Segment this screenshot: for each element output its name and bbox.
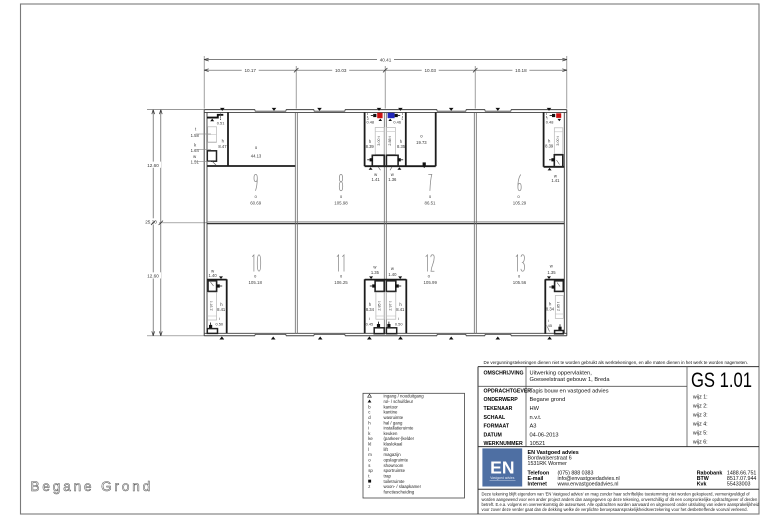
svg-text:wasruimte: wasruimte [384, 415, 404, 420]
svg-text:8.39: 8.39 [545, 144, 554, 149]
svg-text:n.v.t.: n.v.t. [530, 415, 542, 421]
svg-text:1531RK Wormer: 1531RK Wormer [528, 461, 568, 467]
svg-text:105.29: 105.29 [513, 200, 527, 205]
svg-text:10.17: 10.17 [244, 68, 256, 73]
svg-text:105.98: 105.98 [334, 200, 348, 205]
svg-text:1.41: 1.41 [551, 178, 560, 183]
svg-text:o: o [340, 194, 343, 199]
svg-text:o: o [517, 194, 520, 199]
svg-text:o: o [255, 194, 258, 199]
svg-text:A3: A3 [530, 424, 537, 430]
svg-text:Tagis bouw en vastgoed advies: Tagis bouw en vastgoed advies [530, 388, 609, 394]
svg-text:2.88 t: 2.88 t [388, 136, 392, 145]
svg-text:kantoor: kantoor [384, 404, 399, 409]
svg-text:o: o [254, 274, 257, 279]
svg-text:wijz 5:: wijz 5: [693, 431, 708, 437]
svg-text:magazijn: magazijn [384, 452, 402, 457]
svg-text:w: w [193, 154, 197, 159]
svg-text:25.20: 25.20 [145, 219, 157, 224]
svg-text:10.18: 10.18 [515, 68, 527, 73]
svg-text:8.41: 8.41 [396, 307, 405, 312]
svg-text:wijz 6:: wijz 6: [693, 440, 708, 446]
svg-text:OPDRACHTGEVER: OPDRACHTGEVER [484, 388, 532, 394]
svg-text:Vastgoed advies: Vastgoed advies [490, 476, 514, 480]
svg-text:0.46: 0.46 [393, 120, 401, 125]
svg-text:1.40: 1.40 [388, 272, 397, 277]
svg-text:showroom: showroom [384, 463, 404, 468]
svg-text:Kvk: Kvk [697, 482, 707, 488]
svg-text:HW: HW [530, 406, 540, 412]
svg-text:ke: ke [368, 436, 373, 441]
svg-text:FORMAAT: FORMAAT [484, 424, 510, 430]
svg-text:z: z [368, 484, 370, 489]
svg-text:Goeseelstraat gebouw 1, Breda: Goeseelstraat gebouw 1, Breda [530, 377, 611, 383]
svg-text:86.51: 86.51 [425, 200, 437, 205]
svg-text:i: i [368, 426, 369, 431]
svg-text:1.64: 1.64 [191, 148, 200, 153]
svg-text:3.00 t: 3.00 t [377, 136, 381, 145]
svg-text:0.45: 0.45 [544, 323, 552, 328]
svg-text:GS 1.01: GS 1.01 [691, 368, 752, 392]
svg-text:w: w [373, 265, 377, 270]
svg-text:t: t [195, 127, 197, 132]
svg-text:Begane Grond: Begane Grond [31, 479, 154, 494]
svg-text:i: i [398, 316, 399, 321]
svg-text:OMSCHRIJVING: OMSCHRIJVING [484, 371, 524, 377]
svg-text:sp: sp [368, 468, 373, 473]
svg-text:04-06-2013: 04-06-2013 [530, 432, 559, 438]
svg-text:105.99: 105.99 [423, 280, 437, 285]
svg-text:TEKENAAR: TEKENAAR [484, 406, 513, 412]
svg-text:8.47: 8.47 [218, 144, 227, 149]
svg-text:Begane grond: Begane grond [530, 397, 566, 403]
svg-text:10.03: 10.03 [424, 68, 436, 73]
svg-text:o: o [429, 194, 432, 199]
svg-text:o: o [255, 145, 258, 150]
svg-text:wijz 3:: wijz 3: [693, 413, 708, 419]
svg-text:2.97 t: 2.97 t [209, 301, 213, 310]
svg-text:i: i [402, 116, 403, 121]
svg-text:2.85 t: 2.85 t [557, 302, 561, 311]
svg-text:i: i [219, 316, 220, 321]
svg-text:0.50: 0.50 [216, 322, 224, 327]
svg-text:De vergunningstekeningen diene: De vergunningstekeningen dienen niet te … [484, 360, 748, 365]
svg-text:wijz 4:: wijz 4: [693, 422, 708, 428]
svg-text:toiletruimte: toiletruimte [384, 479, 406, 484]
svg-text:h: h [369, 139, 372, 144]
svg-text:i: i [548, 318, 549, 323]
svg-text:wijz 1:: wijz 1: [693, 395, 708, 401]
svg-text:kantine: kantine [384, 410, 398, 415]
svg-text:10.03: 10.03 [335, 68, 347, 73]
svg-text:3.00 t: 3.00 t [556, 136, 560, 145]
svg-text:44.13: 44.13 [251, 153, 262, 158]
svg-text:o: o [518, 274, 521, 279]
svg-text:12.60: 12.60 [147, 274, 159, 279]
svg-text:i: i [369, 316, 370, 321]
svg-text:8.41: 8.41 [217, 307, 226, 312]
svg-text:opslagruimte: opslagruimte [384, 458, 409, 463]
svg-text:h: h [548, 138, 551, 143]
svg-text:106.25: 106.25 [334, 280, 348, 285]
svg-text:rol- / schuifdeur: rol- / schuifdeur [384, 399, 414, 404]
svg-text:1.40: 1.40 [209, 273, 218, 278]
svg-text:functiescheiding: functiescheiding [384, 490, 415, 495]
svg-text:1.36: 1.36 [388, 177, 397, 182]
svg-text:Internet: Internet [528, 482, 548, 488]
svg-text:s: s [368, 463, 370, 468]
svg-text:ingang / nooduitgang: ingang / nooduitgang [384, 394, 425, 399]
svg-text:voor zover deze verder gaat da: voor zover deze verder gaat dan de dekki… [482, 507, 748, 512]
svg-text:wijz 2:: wijz 2: [693, 404, 708, 410]
svg-text:0.51: 0.51 [217, 120, 225, 125]
svg-text:keuken: keuken [384, 431, 398, 436]
svg-text:l: l [368, 447, 369, 452]
svg-text:8.34: 8.34 [546, 307, 555, 312]
svg-text:www.envastgoedadvies.nl: www.envastgoedadvies.nl [558, 482, 619, 488]
svg-text:8.35: 8.35 [397, 144, 406, 149]
svg-text:1.35: 1.35 [371, 270, 380, 275]
svg-text:sportruimte: sportruimte [384, 468, 406, 473]
svg-text:2.85 t: 2.85 t [377, 301, 381, 310]
svg-text:k: k [194, 142, 197, 147]
svg-text:12.60: 12.60 [147, 163, 159, 168]
svg-text:0.48: 0.48 [546, 119, 554, 124]
svg-text:(parkeer-)kelder: (parkeer-)kelder [384, 436, 415, 441]
svg-text:ONDERWERP: ONDERWERP [484, 397, 519, 403]
svg-text:0.48: 0.48 [367, 120, 375, 125]
svg-text:installatieruimte: installatieruimte [384, 426, 414, 431]
svg-text:Uitwerking oppervlakten,: Uitwerking oppervlakten, [530, 371, 593, 377]
svg-text:o: o [340, 274, 343, 279]
svg-text:10521: 10521 [530, 441, 546, 447]
svg-text:trap: trap [384, 474, 392, 479]
svg-text:woon- / slaapkamer: woon- / slaapkamer [384, 484, 422, 489]
svg-text:40.41: 40.41 [380, 58, 392, 63]
svg-text:w: w [550, 263, 554, 268]
svg-text:klaslokaal: klaslokaal [384, 442, 403, 447]
svg-text:h: h [222, 139, 225, 144]
svg-text:o: o [428, 274, 431, 279]
svg-text:8.39: 8.39 [366, 144, 375, 149]
svg-text:kl: kl [368, 442, 371, 447]
svg-text:105.18: 105.18 [248, 280, 262, 285]
svg-text:2.97 t: 2.97 t [389, 301, 393, 310]
svg-text:w: w [391, 266, 395, 271]
svg-text:0.50: 0.50 [395, 322, 403, 327]
svg-text:DATUM: DATUM [484, 432, 502, 438]
svg-text:h: h [400, 139, 403, 144]
svg-text:o: o [420, 133, 423, 138]
svg-text:105.56: 105.56 [513, 280, 527, 285]
svg-text:m: m [368, 452, 372, 457]
svg-text:1.35: 1.35 [547, 270, 556, 275]
svg-text:SCHAAL: SCHAAL [484, 415, 506, 421]
svg-text:55433003: 55433003 [727, 482, 751, 488]
svg-text:EN: EN [490, 458, 514, 478]
svg-text:1.51: 1.51 [191, 159, 200, 164]
svg-text:0.45: 0.45 [366, 322, 374, 327]
svg-text:hal / gang: hal / gang [384, 420, 403, 425]
svg-text:WERKNUMMER: WERKNUMMER [484, 441, 523, 447]
svg-text:1.41: 1.41 [372, 177, 381, 182]
svg-text:19.73: 19.73 [416, 140, 427, 145]
svg-text:60.69: 60.69 [250, 200, 262, 205]
svg-text:8.34: 8.34 [366, 307, 375, 312]
